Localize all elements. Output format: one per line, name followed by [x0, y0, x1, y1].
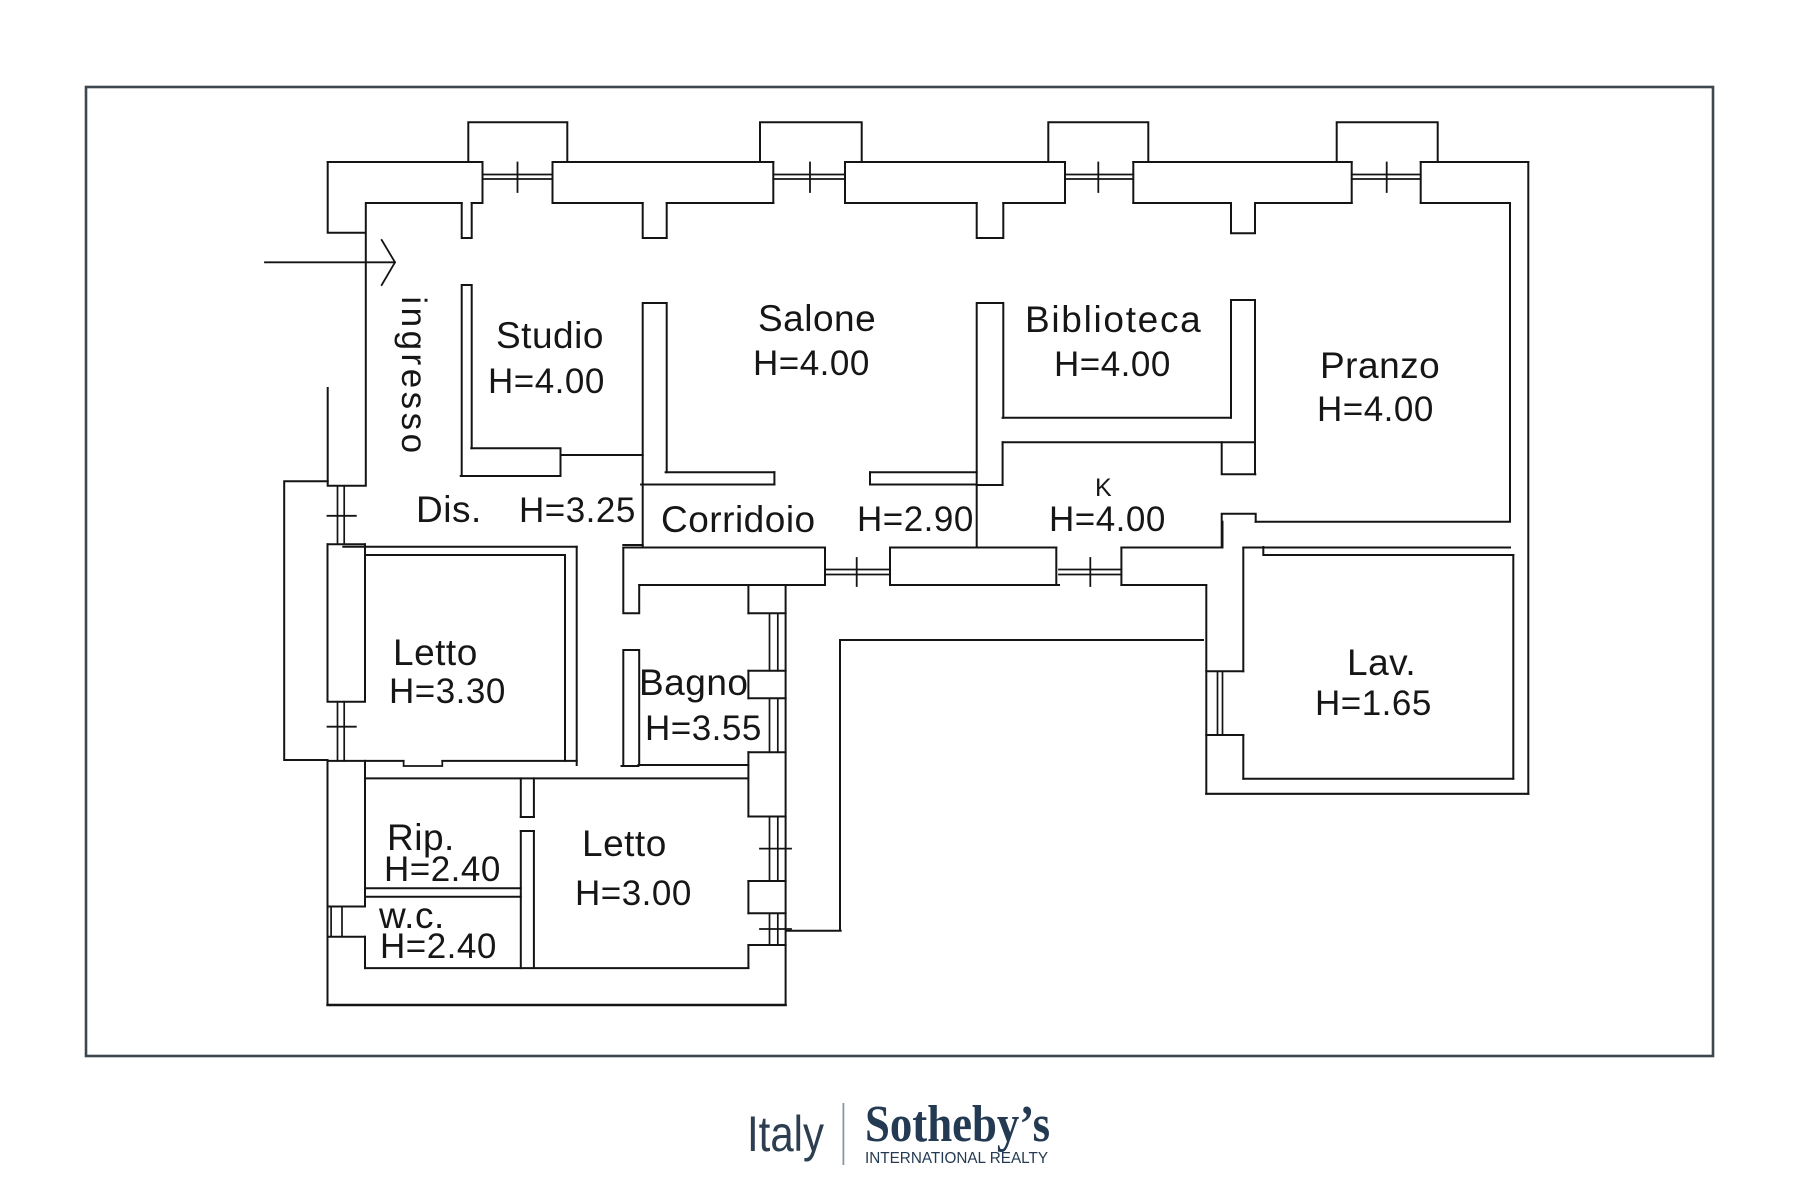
- svg-text:H=4.00: H=4.00: [1317, 390, 1434, 429]
- svg-text:H=3.00: H=3.00: [575, 874, 692, 913]
- svg-text:Pranzo: Pranzo: [1320, 345, 1440, 386]
- svg-text:Biblioteca: Biblioteca: [1025, 299, 1202, 340]
- svg-text:H=2.90: H=2.90: [857, 500, 974, 539]
- svg-text:H=4.00: H=4.00: [753, 344, 870, 383]
- svg-text:H=4.00: H=4.00: [488, 362, 605, 401]
- svg-text:H=2.40: H=2.40: [384, 850, 501, 889]
- svg-text:H=4.00: H=4.00: [1054, 345, 1171, 384]
- svg-text:Salone: Salone: [758, 298, 876, 339]
- svg-text:H=4.00: H=4.00: [1049, 500, 1166, 539]
- svg-text:Sotheby’s: Sotheby’s: [865, 1096, 1050, 1153]
- svg-text:K: K: [1095, 474, 1112, 502]
- svg-text:Letto: Letto: [393, 632, 478, 673]
- svg-text:Lav.: Lav.: [1347, 642, 1416, 683]
- svg-text:H=3.30: H=3.30: [389, 672, 506, 711]
- svg-text:H=1.65: H=1.65: [1315, 684, 1432, 723]
- svg-text:INTERNATIONAL REALTY: INTERNATIONAL REALTY: [865, 1150, 1048, 1167]
- svg-text:H=2.40: H=2.40: [380, 927, 497, 966]
- svg-text:Studio: Studio: [496, 315, 604, 356]
- svg-text:H=3.55: H=3.55: [645, 709, 762, 748]
- svg-text:Dis.: Dis.: [416, 489, 482, 530]
- svg-text:Letto: Letto: [582, 823, 667, 864]
- svg-text:Bagno: Bagno: [639, 662, 749, 703]
- svg-text:Italy: Italy: [747, 1106, 824, 1162]
- svg-text:H=3.25: H=3.25: [519, 491, 636, 530]
- svg-text:ingresso: ingresso: [394, 296, 433, 456]
- svg-text:Corridoio: Corridoio: [661, 499, 816, 540]
